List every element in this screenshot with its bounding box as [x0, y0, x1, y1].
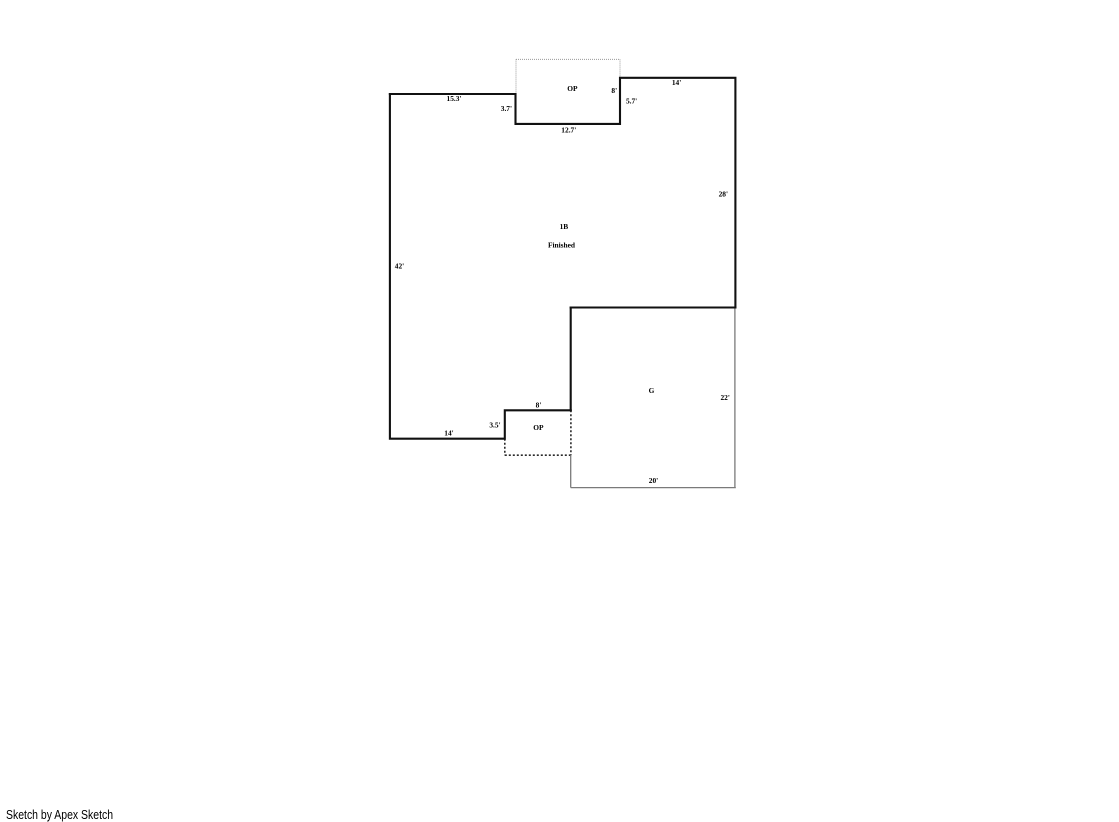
svg-text:1B: 1B: [560, 222, 569, 231]
svg-text:14': 14': [672, 78, 681, 87]
svg-text:3.7': 3.7': [501, 104, 512, 113]
svg-text:15.3': 15.3': [447, 94, 462, 103]
svg-text:8': 8': [536, 401, 542, 410]
svg-text:22': 22': [720, 393, 729, 402]
svg-text:14': 14': [444, 429, 453, 438]
svg-text:42': 42': [395, 261, 404, 270]
svg-text:Finished: Finished: [548, 240, 576, 249]
svg-text:12.7': 12.7': [561, 126, 576, 135]
svg-text:8': 8': [611, 86, 617, 95]
svg-text:3.5': 3.5': [489, 420, 500, 429]
svg-text:OP: OP: [567, 84, 578, 93]
svg-text:20': 20': [649, 476, 658, 485]
svg-text:G: G: [649, 386, 655, 395]
svg-text:28': 28': [719, 189, 728, 198]
svg-text:OP: OP: [533, 423, 544, 432]
svg-text:5.7': 5.7': [626, 97, 637, 106]
